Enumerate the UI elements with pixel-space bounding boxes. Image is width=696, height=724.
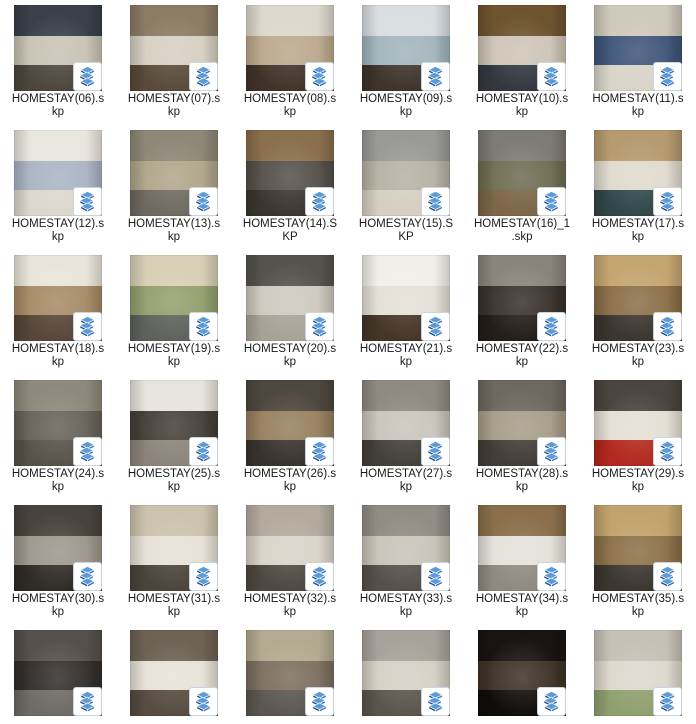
sketchup-logo-icon bbox=[76, 565, 99, 588]
file-name: HOMESTAY(06).s kp bbox=[0, 93, 116, 119]
sketchup-logo-icon bbox=[656, 190, 679, 213]
file-tile[interactable] bbox=[580, 625, 696, 724]
sketchup-logo-icon bbox=[308, 440, 331, 463]
file-name-line2: kp bbox=[580, 481, 696, 494]
file-name-line1: HOMESTAY(10).s bbox=[464, 93, 580, 106]
file-name: HOMESTAY(12).s kp bbox=[0, 218, 116, 244]
file-thumbnail[interactable] bbox=[246, 505, 334, 591]
file-tile[interactable]: HOMESTAY(33).s kp bbox=[348, 500, 464, 625]
file-name: HOMESTAY(34).s kp bbox=[464, 593, 580, 619]
file-thumbnail[interactable] bbox=[478, 630, 566, 716]
file-thumbnail[interactable] bbox=[478, 5, 566, 91]
file-tile[interactable]: HOMESTAY(26).s kp bbox=[232, 375, 348, 500]
sketchup-badge bbox=[537, 312, 566, 341]
sketchup-badge bbox=[73, 437, 102, 466]
sketchup-logo-icon bbox=[656, 690, 679, 713]
sketchup-logo-icon bbox=[76, 440, 99, 463]
file-name-line2: kp bbox=[580, 231, 696, 244]
file-name-line1: HOMESTAY(19).s bbox=[116, 343, 232, 356]
file-tile[interactable]: HOMESTAY(15).S KP bbox=[348, 125, 464, 250]
file-thumbnail[interactable] bbox=[14, 380, 102, 466]
sketchup-badge bbox=[653, 312, 682, 341]
file-name-line1: HOMESTAY(27).s bbox=[348, 468, 464, 481]
sketchup-logo-icon bbox=[424, 190, 447, 213]
file-tile[interactable]: HOMESTAY(14).S KP bbox=[232, 125, 348, 250]
file-thumbnail[interactable] bbox=[14, 130, 102, 216]
file-name: HOMESTAY(35).s kp bbox=[580, 593, 696, 619]
file-name-line2: kp bbox=[580, 356, 696, 369]
file-name-line2: kp bbox=[348, 481, 464, 494]
file-name-line2: kp bbox=[580, 106, 696, 119]
sketchup-badge bbox=[537, 687, 566, 716]
file-name-line2: kp bbox=[116, 231, 232, 244]
file-name-line1: HOMESTAY(22).s bbox=[464, 343, 580, 356]
file-thumbnail[interactable] bbox=[130, 5, 218, 91]
file-name-line2: kp bbox=[348, 356, 464, 369]
file-name-line2: KP bbox=[348, 231, 464, 244]
file-name: HOMESTAY(09).s kp bbox=[348, 93, 464, 119]
file-thumbnail[interactable] bbox=[362, 380, 450, 466]
file-name: HOMESTAY(07).s kp bbox=[116, 93, 232, 119]
file-tile[interactable]: HOMESTAY(08).s kp bbox=[232, 0, 348, 125]
file-name: HOMESTAY(27).s kp bbox=[348, 468, 464, 494]
file-tile[interactable]: HOMESTAY(11).s kp bbox=[580, 0, 696, 125]
file-tile[interactable] bbox=[232, 625, 348, 724]
file-tile[interactable]: HOMESTAY(18).s kp bbox=[0, 250, 116, 375]
file-thumbnail[interactable] bbox=[130, 505, 218, 591]
file-name-line2: kp bbox=[0, 356, 116, 369]
sketchup-logo-icon bbox=[192, 315, 215, 338]
file-thumbnail[interactable] bbox=[246, 380, 334, 466]
file-name: HOMESTAY(26).s kp bbox=[232, 468, 348, 494]
sketchup-logo-icon bbox=[656, 440, 679, 463]
file-name: HOMESTAY(13).s kp bbox=[116, 218, 232, 244]
file-thumbnail[interactable] bbox=[362, 130, 450, 216]
sketchup-badge bbox=[421, 437, 450, 466]
sketchup-logo-icon bbox=[540, 565, 563, 588]
sketchup-badge bbox=[305, 312, 334, 341]
sketchup-logo-icon bbox=[308, 65, 331, 88]
file-name-line1: HOMESTAY(25).s bbox=[116, 468, 232, 481]
file-name-line1: HOMESTAY(21).s bbox=[348, 343, 464, 356]
file-name-line2: kp bbox=[348, 606, 464, 619]
file-name-line2: kp bbox=[232, 106, 348, 119]
sketchup-badge bbox=[305, 687, 334, 716]
file-name-line2: kp bbox=[116, 106, 232, 119]
file-name-line1: HOMESTAY(31).s bbox=[116, 593, 232, 606]
file-thumbnail[interactable] bbox=[246, 5, 334, 91]
file-name-line2: kp bbox=[232, 606, 348, 619]
sketchup-logo-icon bbox=[424, 440, 447, 463]
sketchup-logo-icon bbox=[76, 65, 99, 88]
file-name: HOMESTAY(30).s kp bbox=[0, 593, 116, 619]
sketchup-badge bbox=[189, 562, 218, 591]
file-name-line1: HOMESTAY(30).s bbox=[0, 593, 116, 606]
sketchup-badge bbox=[537, 562, 566, 591]
file-thumbnail[interactable] bbox=[362, 630, 450, 716]
sketchup-badge bbox=[653, 62, 682, 91]
file-thumbnail[interactable] bbox=[362, 505, 450, 591]
file-thumbnail[interactable] bbox=[130, 630, 218, 716]
sketchup-logo-icon bbox=[540, 315, 563, 338]
file-tile[interactable]: HOMESTAY(13).s kp bbox=[116, 125, 232, 250]
sketchup-logo-icon bbox=[192, 440, 215, 463]
file-name: HOMESTAY(18).s kp bbox=[0, 343, 116, 369]
file-tile[interactable]: HOMESTAY(30).s kp bbox=[0, 500, 116, 625]
sketchup-badge bbox=[421, 312, 450, 341]
file-name-line1: HOMESTAY(15).S bbox=[348, 218, 464, 231]
sketchup-logo-icon bbox=[192, 565, 215, 588]
sketchup-logo-icon bbox=[192, 690, 215, 713]
file-tile[interactable]: HOMESTAY(12).s kp bbox=[0, 125, 116, 250]
sketchup-badge bbox=[189, 62, 218, 91]
sketchup-badge bbox=[421, 687, 450, 716]
sketchup-badge bbox=[305, 562, 334, 591]
sketchup-badge bbox=[73, 62, 102, 91]
file-tile[interactable]: HOMESTAY(31).s kp bbox=[116, 500, 232, 625]
file-tile[interactable]: HOMESTAY(07).s kp bbox=[116, 0, 232, 125]
file-name-line1: HOMESTAY(12).s bbox=[0, 218, 116, 231]
file-name: HOMESTAY(29).s kp bbox=[580, 468, 696, 494]
file-thumbnail[interactable] bbox=[14, 505, 102, 591]
file-thumbnail[interactable] bbox=[594, 130, 682, 216]
sketchup-badge bbox=[653, 437, 682, 466]
sketchup-badge bbox=[305, 437, 334, 466]
file-name: HOMESTAY(11).s kp bbox=[580, 93, 696, 119]
file-name-line2: kp bbox=[464, 106, 580, 119]
file-tile[interactable]: HOMESTAY(24).s kp bbox=[0, 375, 116, 500]
sketchup-logo-icon bbox=[308, 565, 331, 588]
file-name: HOMESTAY(22).s kp bbox=[464, 343, 580, 369]
file-name-line2: KP bbox=[232, 231, 348, 244]
file-thumbnail[interactable] bbox=[594, 255, 682, 341]
file-name: HOMESTAY(31).s kp bbox=[116, 593, 232, 619]
file-tile[interactable]: HOMESTAY(06).s kp bbox=[0, 0, 116, 125]
file-name-line2: kp bbox=[232, 481, 348, 494]
sketchup-logo-icon bbox=[308, 190, 331, 213]
file-tile[interactable]: HOMESTAY(21).s kp bbox=[348, 250, 464, 375]
file-tile[interactable]: HOMESTAY(35).s kp bbox=[580, 500, 696, 625]
sketchup-logo-icon bbox=[308, 315, 331, 338]
file-tile[interactable] bbox=[0, 625, 116, 724]
sketchup-badge bbox=[305, 187, 334, 216]
sketchup-badge bbox=[537, 437, 566, 466]
file-thumbnail[interactable] bbox=[246, 255, 334, 341]
sketchup-badge bbox=[537, 62, 566, 91]
file-name-line1: HOMESTAY(14).S bbox=[232, 218, 348, 231]
file-name: HOMESTAY(15).S KP bbox=[348, 218, 464, 244]
file-name: HOMESTAY(19).s kp bbox=[116, 343, 232, 369]
file-tile[interactable] bbox=[116, 625, 232, 724]
file-tile[interactable]: HOMESTAY(34).s kp bbox=[464, 500, 580, 625]
file-name: HOMESTAY(08).s kp bbox=[232, 93, 348, 119]
file-thumbnail[interactable] bbox=[478, 505, 566, 591]
file-tile[interactable] bbox=[464, 625, 580, 724]
file-thumbnail[interactable] bbox=[246, 130, 334, 216]
sketchup-logo-icon bbox=[424, 565, 447, 588]
file-name-line2: kp bbox=[464, 356, 580, 369]
file-name-line1: HOMESTAY(34).s bbox=[464, 593, 580, 606]
sketchup-badge bbox=[653, 562, 682, 591]
sketchup-badge bbox=[189, 687, 218, 716]
file-name-line1: HOMESTAY(23).s bbox=[580, 343, 696, 356]
file-thumbnail[interactable] bbox=[14, 630, 102, 716]
file-name-line1: HOMESTAY(35).s bbox=[580, 593, 696, 606]
file-name-line1: HOMESTAY(08).s bbox=[232, 93, 348, 106]
file-tile[interactable]: HOMESTAY(27).s kp bbox=[348, 375, 464, 500]
sketchup-badge bbox=[73, 187, 102, 216]
sketchup-logo-icon bbox=[76, 690, 99, 713]
file-name-line2: kp bbox=[348, 106, 464, 119]
sketchup-logo-icon bbox=[192, 65, 215, 88]
file-tile[interactable]: HOMESTAY(32).s kp bbox=[232, 500, 348, 625]
file-name-line1: HOMESTAY(28).s bbox=[464, 468, 580, 481]
file-name-line2: kp bbox=[464, 606, 580, 619]
sketchup-badge bbox=[421, 62, 450, 91]
file-name-line2: kp bbox=[464, 481, 580, 494]
sketchup-badge bbox=[73, 687, 102, 716]
file-thumbnail[interactable] bbox=[594, 630, 682, 716]
sketchup-badge bbox=[421, 562, 450, 591]
file-name-line2: kp bbox=[0, 106, 116, 119]
file-tile[interactable]: HOMESTAY(16)_1 .skp bbox=[464, 125, 580, 250]
sketchup-badge bbox=[73, 562, 102, 591]
file-name-line2: kp bbox=[0, 606, 116, 619]
sketchup-badge bbox=[653, 187, 682, 216]
file-name-line1: HOMESTAY(29).s bbox=[580, 468, 696, 481]
sketchup-logo-icon bbox=[540, 440, 563, 463]
file-name: HOMESTAY(32).s kp bbox=[232, 593, 348, 619]
sketchup-logo-icon bbox=[540, 690, 563, 713]
sketchup-badge bbox=[189, 437, 218, 466]
file-name-line1: HOMESTAY(33).s bbox=[348, 593, 464, 606]
file-name-line2: kp bbox=[116, 356, 232, 369]
file-tile[interactable]: HOMESTAY(25).s kp bbox=[116, 375, 232, 500]
sketchup-badge bbox=[421, 187, 450, 216]
sketchup-badge bbox=[189, 187, 218, 216]
file-name: HOMESTAY(25).s kp bbox=[116, 468, 232, 494]
file-name-line1: HOMESTAY(13).s bbox=[116, 218, 232, 231]
file-name-line1: HOMESTAY(17).s bbox=[580, 218, 696, 231]
file-name: HOMESTAY(23).s kp bbox=[580, 343, 696, 369]
sketchup-logo-icon bbox=[540, 65, 563, 88]
file-name: HOMESTAY(10).s kp bbox=[464, 93, 580, 119]
sketchup-logo-icon bbox=[540, 190, 563, 213]
file-tile[interactable] bbox=[348, 625, 464, 724]
file-tile[interactable]: HOMESTAY(09).s kp bbox=[348, 0, 464, 125]
file-tile[interactable]: HOMESTAY(10).s kp bbox=[464, 0, 580, 125]
file-name-line1: HOMESTAY(26).s bbox=[232, 468, 348, 481]
file-name: HOMESTAY(14).S KP bbox=[232, 218, 348, 244]
file-tile[interactable]: HOMESTAY(29).s kp bbox=[580, 375, 696, 500]
file-name-line1: HOMESTAY(18).s bbox=[0, 343, 116, 356]
file-name-line1: HOMESTAY(32).s bbox=[232, 593, 348, 606]
file-thumbnail[interactable] bbox=[594, 505, 682, 591]
file-name-line1: HOMESTAY(16)_1 bbox=[464, 218, 580, 231]
sketchup-logo-icon bbox=[656, 315, 679, 338]
file-name: HOMESTAY(16)_1 .skp bbox=[464, 218, 580, 244]
file-name-line2: kp bbox=[116, 606, 232, 619]
file-tile[interactable]: HOMESTAY(20).s kp bbox=[232, 250, 348, 375]
file-thumbnail[interactable] bbox=[14, 255, 102, 341]
sketchup-badge bbox=[653, 687, 682, 716]
file-thumbnail[interactable] bbox=[478, 130, 566, 216]
file-tile[interactable]: HOMESTAY(19).s kp bbox=[116, 250, 232, 375]
sketchup-logo-icon bbox=[656, 565, 679, 588]
sketchup-logo-icon bbox=[424, 65, 447, 88]
file-name: HOMESTAY(33).s kp bbox=[348, 593, 464, 619]
file-name: HOMESTAY(20).s kp bbox=[232, 343, 348, 369]
file-name-line2: kp bbox=[232, 356, 348, 369]
file-thumbnail[interactable] bbox=[594, 5, 682, 91]
file-name-line2: kp bbox=[116, 481, 232, 494]
file-name: HOMESTAY(28).s kp bbox=[464, 468, 580, 494]
sketchup-logo-icon bbox=[424, 690, 447, 713]
file-thumbnail[interactable] bbox=[130, 255, 218, 341]
file-name-line1: HOMESTAY(06).s bbox=[0, 93, 116, 106]
file-name-line2: .skp bbox=[464, 231, 580, 244]
file-name-line1: HOMESTAY(07).s bbox=[116, 93, 232, 106]
file-tile[interactable]: HOMESTAY(23).s kp bbox=[580, 250, 696, 375]
file-name-line1: HOMESTAY(11).s bbox=[580, 93, 696, 106]
sketchup-logo-icon bbox=[656, 65, 679, 88]
file-thumbnail[interactable] bbox=[14, 5, 102, 91]
sketchup-logo-icon bbox=[308, 690, 331, 713]
file-thumbnail[interactable] bbox=[246, 630, 334, 716]
file-tile[interactable]: HOMESTAY(28).s kp bbox=[464, 375, 580, 500]
sketchup-logo-icon bbox=[192, 190, 215, 213]
file-name-line1: HOMESTAY(09).s bbox=[348, 93, 464, 106]
file-thumbnail[interactable] bbox=[362, 255, 450, 341]
file-thumbnail[interactable] bbox=[362, 5, 450, 91]
file-name-line2: kp bbox=[0, 231, 116, 244]
sketchup-badge bbox=[73, 312, 102, 341]
file-name-line2: kp bbox=[0, 481, 116, 494]
sketchup-logo-icon bbox=[76, 190, 99, 213]
file-thumbnail[interactable] bbox=[594, 380, 682, 466]
file-thumbnail[interactable] bbox=[478, 255, 566, 341]
file-thumbnail[interactable] bbox=[130, 380, 218, 466]
file-thumbnail[interactable] bbox=[130, 130, 218, 216]
file-name-line1: HOMESTAY(20).s bbox=[232, 343, 348, 356]
file-name: HOMESTAY(21).s kp bbox=[348, 343, 464, 369]
file-thumbnail[interactable] bbox=[478, 380, 566, 466]
file-name-line1: HOMESTAY(24).s bbox=[0, 468, 116, 481]
sketchup-logo-icon bbox=[76, 315, 99, 338]
file-grid: HOMESTAY(06).s kp bbox=[0, 0, 696, 724]
file-name: HOMESTAY(24).s kp bbox=[0, 468, 116, 494]
sketchup-badge bbox=[189, 312, 218, 341]
file-tile[interactable]: HOMESTAY(22).s kp bbox=[464, 250, 580, 375]
file-name: HOMESTAY(17).s kp bbox=[580, 218, 696, 244]
sketchup-logo-icon bbox=[424, 315, 447, 338]
sketchup-badge bbox=[305, 62, 334, 91]
file-tile[interactable]: HOMESTAY(17).s kp bbox=[580, 125, 696, 250]
sketchup-badge bbox=[537, 187, 566, 216]
file-name-line2: kp bbox=[580, 606, 696, 619]
